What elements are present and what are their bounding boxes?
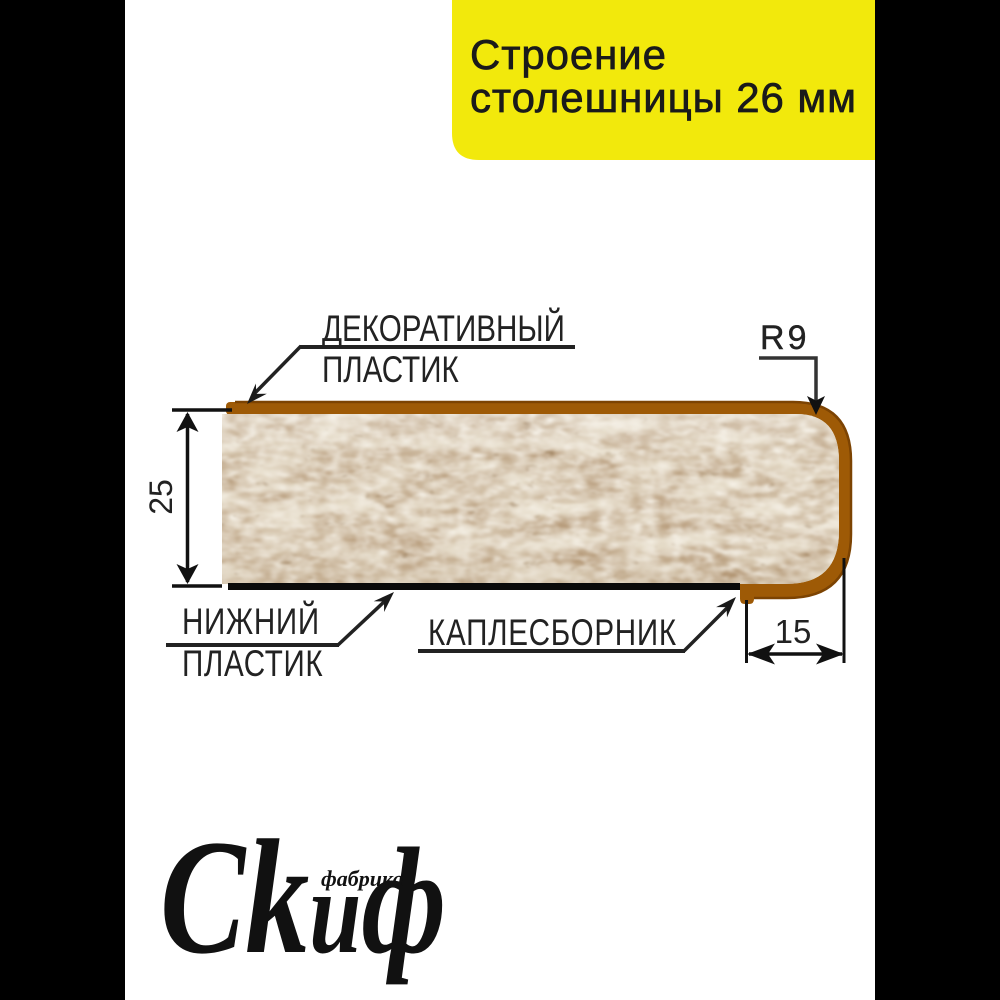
svg-text:25: 25 — [143, 479, 179, 515]
svg-text:ПЛАСТИК: ПЛАСТИК — [322, 350, 459, 391]
svg-text:ДЕКОРАТИВНЫЙ: ДЕКОРАТИВНЫЙ — [322, 308, 565, 350]
svg-text:Сkиф: Сkиф — [160, 806, 446, 988]
svg-text:R9: R9 — [760, 319, 806, 357]
svg-text:ПЛАСТИК: ПЛАСТИК — [182, 644, 323, 685]
svg-text:НИЖНИЙ: НИЖНИЙ — [182, 601, 320, 643]
svg-text:Строение: Строение — [470, 31, 667, 78]
svg-text:КАПЛЕСБОРНИК: КАПЛЕСБОРНИК — [428, 613, 677, 654]
svg-text:15: 15 — [775, 613, 812, 650]
svg-text:столешницы 26 мм: столешницы 26 мм — [470, 74, 857, 121]
svg-text:фабрика: фабрика — [321, 866, 404, 891]
